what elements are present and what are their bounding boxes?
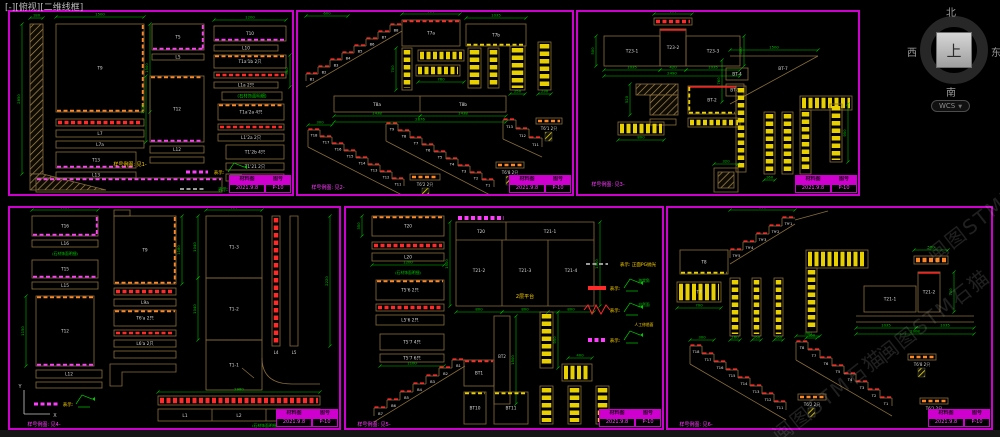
svg-text:自然面: 自然面 (638, 302, 650, 307)
svg-text:T9: T9 (96, 66, 103, 72)
drawing-panel-1: 18028501500T91500L7L7aT13L13T5L51150T12L… (10, 12, 292, 194)
title-block-cell: 材料图 (599, 409, 635, 418)
svg-text:760: 760 (437, 77, 445, 82)
svg-text:T7: T7 (695, 290, 702, 296)
svg-text:表示:: 表示: (610, 307, 621, 314)
svg-text:L15: L15 (61, 283, 69, 289)
title-block-cell: 图号 (831, 175, 857, 184)
svg-text:样号例图: 见5-: 样号例图: 见5- (357, 421, 390, 428)
svg-text:L5'6 2只: L5'6 2只 (401, 318, 419, 324)
svg-text:300: 300 (316, 120, 324, 125)
svg-text:T17: T17 (322, 140, 330, 144)
viewcube-south-label[interactable]: 南 (946, 84, 956, 99)
svg-text:B4: B4 (417, 388, 422, 392)
svg-text:350: 350 (356, 222, 361, 230)
svg-text:T7: T7 (413, 141, 418, 145)
svg-text:760: 760 (716, 77, 721, 85)
title-block-cell: P-10 (265, 184, 291, 193)
svg-text:样号例图: 见3-: 样号例图: 见3- (591, 181, 624, 188)
svg-text:T11: T11 (776, 406, 784, 410)
viewport-panel-2[interactable]: 600B1B2B3B4B5B6B7B8950T7a7007601035T7b25… (296, 10, 574, 196)
svg-text:L6'a 2只: L6'a 2只 (136, 341, 154, 347)
svg-text:T17: T17 (704, 358, 712, 362)
svg-text:520: 520 (624, 95, 629, 103)
svg-text:B7: B7 (378, 412, 383, 416)
svg-text:T1-1: T1-1 (228, 363, 239, 369)
svg-text:T9'1: T9'1 (784, 222, 793, 226)
svg-text:表示:: 表示: (214, 169, 225, 176)
viewport-controls-label[interactable]: [-][俯视][二维线框] (5, 0, 83, 13)
svg-text:T4: T4 (449, 162, 455, 166)
svg-text:B3: B3 (430, 380, 435, 384)
svg-text:T2: T2 (473, 176, 478, 180)
title-block: 材料图图号2021.9.8P-10 (276, 409, 338, 427)
title-block: 材料图图号2021.9.8P-10 (599, 409, 661, 427)
svg-text:T13: T13 (370, 168, 378, 172)
title-block-cell: P-10 (312, 418, 338, 427)
svg-text:样号例图: 见1-: 样号例图: 见1- (113, 161, 146, 168)
svg-text:500: 500 (738, 47, 743, 55)
svg-text:T20: T20 (476, 229, 485, 235)
svg-text:T9'5: T9'5 (732, 254, 741, 258)
svg-text:样号例图: 见2-: 样号例图: 见2- (311, 184, 344, 191)
svg-text:T12: T12 (172, 107, 181, 113)
svg-text:BT-7: BT-7 (778, 66, 788, 72)
svg-text:T1-2: T1-2 (228, 307, 239, 313)
svg-text:180: 180 (33, 13, 41, 18)
svg-text:1500: 1500 (510, 355, 515, 365)
svg-text:950: 950 (230, 208, 238, 210)
svg-text:L7a: L7a (96, 142, 104, 148)
svg-text:L16: L16 (61, 241, 69, 247)
svg-text:T12: T12 (764, 398, 772, 402)
svg-text:160: 160 (731, 335, 739, 340)
viewcube[interactable]: 上 北 南 西 东 WCS▼ (905, 4, 1000, 108)
svg-text:900: 900 (759, 208, 767, 210)
svg-text:160: 160 (753, 335, 761, 340)
svg-text:T9'2: T9'2 (771, 230, 780, 234)
svg-text:T8: T8 (799, 346, 805, 350)
title-block-cell: 2021.9.8 (509, 184, 545, 193)
drawing-panel-6: 900T9'5T9'4T9'3T9'2T9'1T8T77001601601601… (668, 208, 991, 428)
title-block-cell: P-10 (831, 184, 857, 193)
svg-text:表示:: 表示: (610, 337, 621, 344)
cad-canvas: [-][俯视][二维线框] 18028501500T91500L7L7aT13L… (0, 0, 1000, 437)
title-block-cell: 图号 (265, 175, 291, 184)
svg-text:(石材饰面明细): (石材饰面明细) (237, 93, 266, 100)
viewcube-west-label[interactable]: 西 (907, 44, 917, 59)
svg-text:T9: T9 (141, 248, 148, 254)
svg-text:(石材饰面明细): (石材饰面明细) (395, 270, 421, 275)
svg-text:1500: 1500 (144, 63, 149, 73)
svg-text:1035: 1035 (491, 13, 501, 18)
svg-text:T5: T5 (835, 370, 840, 374)
svg-text:1200: 1200 (245, 15, 255, 20)
svg-text:2876: 2876 (415, 117, 425, 122)
title-block-cell: 材料图 (509, 175, 545, 184)
svg-text:B1: B1 (456, 364, 461, 368)
svg-text:250: 250 (514, 89, 522, 94)
svg-text:T21-2: T21-2 (922, 290, 936, 296)
svg-text:T13: T13 (91, 158, 100, 164)
svg-text:1500: 1500 (95, 12, 105, 17)
svg-text:样号例图: 见4-: 样号例图: 见4- (27, 421, 60, 428)
viewcube-top-face[interactable]: 上 (936, 32, 972, 68)
drawing-panel-5: 350T20L201200(石材饰面明细)T5'6 2只L5'6 2只T5'7 … (346, 208, 662, 428)
svg-text:1035: 1035 (940, 323, 950, 328)
svg-text:560: 560 (927, 245, 935, 250)
svg-text:T23-2: T23-2 (666, 45, 680, 51)
svg-text:T6'2 2只: T6'2 2只 (803, 402, 820, 407)
viewport-panel-1[interactable]: 18028501500T91500L7L7aT13L13T5L51150T12L… (8, 10, 294, 196)
svg-text:T12: T12 (518, 134, 526, 138)
viewport-panel-4[interactable]: 1050T16L16(石材饰面明细)T15L151150T12L12T91180… (8, 206, 341, 430)
svg-text:160: 160 (766, 175, 774, 180)
svg-text:160: 160 (775, 335, 783, 340)
svg-text:1200: 1200 (403, 260, 413, 265)
svg-text:1150: 1150 (140, 104, 145, 114)
title-block-cell: 材料图 (229, 175, 265, 184)
svg-text:600: 600 (669, 12, 677, 14)
svg-text:表示:: 表示: (610, 285, 621, 292)
svg-text:800: 800 (637, 135, 645, 140)
svg-text:T5: T5 (437, 155, 442, 159)
svg-text:T3: T3 (859, 386, 864, 390)
svg-text:T16: T16 (716, 366, 724, 370)
svg-text:T18: T18 (692, 350, 700, 354)
svg-text:1150: 1150 (20, 326, 25, 336)
wcs-dropdown[interactable]: WCS▼ (931, 100, 970, 112)
svg-text:T16: T16 (60, 224, 69, 230)
svg-text:400: 400 (576, 353, 584, 358)
svg-text:T1'2b 4只: T1'2b 4只 (244, 150, 266, 156)
svg-text:T8: T8 (401, 134, 407, 138)
svg-text:L10: L10 (242, 46, 250, 52)
svg-text:2850: 2850 (16, 94, 21, 104)
svg-text:950: 950 (842, 129, 847, 137)
svg-text:T1'21 2只: T1'21 2只 (244, 164, 266, 170)
svg-text:2980: 2980 (234, 387, 244, 392)
svg-text:T15: T15 (728, 374, 736, 378)
svg-text:T1: T1 (883, 402, 888, 406)
svg-text:T16: T16 (334, 147, 342, 151)
title-block-cell: 图号 (635, 409, 661, 418)
svg-text:1035: 1035 (881, 323, 891, 328)
svg-text:L12: L12 (173, 147, 181, 153)
svg-text:1040: 1040 (192, 242, 197, 252)
svg-text:样号例图: 见6-: 样号例图: 见6- (679, 421, 712, 428)
svg-text:1500: 1500 (769, 45, 779, 50)
svg-text:L1: L1 (182, 413, 187, 419)
title-block: 材料图图号2021.9.8P-10 (795, 175, 857, 193)
svg-text:2层平台: 2层平台 (516, 293, 534, 300)
svg-text:B7: B7 (382, 35, 387, 39)
svg-text:T15: T15 (60, 267, 69, 273)
svg-text:T6'1 2只: T6'1 2只 (540, 126, 557, 131)
title-block-cell: 2021.9.8 (276, 418, 312, 427)
svg-text:950: 950 (552, 336, 557, 344)
svg-text:T12: T12 (60, 329, 69, 335)
svg-text:300: 300 (698, 335, 706, 340)
svg-text:800: 800 (567, 307, 575, 312)
svg-text:T6'a 2只: T6'a 2只 (135, 316, 154, 322)
title-block-cell: P-10 (964, 418, 990, 427)
viewport-panel-6[interactable]: 900T9'5T9'4T9'3T9'2T9'1T8T77001601601601… (666, 206, 993, 430)
svg-text:T10: T10 (245, 31, 254, 37)
bottom-edge-strip (0, 430, 1000, 437)
svg-text:T8a: T8a (372, 102, 381, 108)
svg-text:T7b: T7b (491, 33, 500, 39)
title-block: 材料图图号2021.9.8P-10 (229, 175, 291, 193)
svg-text:B2: B2 (322, 70, 327, 74)
svg-text:L9a: L9a (141, 300, 149, 306)
svg-text:600: 600 (323, 12, 331, 16)
svg-text:L1'2a 2只: L1'2a 2只 (241, 135, 262, 141)
svg-text:320: 320 (722, 159, 730, 164)
svg-text:B8: B8 (394, 28, 399, 32)
svg-text:海棠角: 海棠角 (638, 278, 650, 283)
svg-text:BT1: BT1 (475, 371, 484, 377)
title-block-cell: 材料图 (928, 409, 964, 418)
title-block-cell: 2021.9.8 (599, 418, 635, 427)
svg-text:(石材饰面明细): (石材饰面明细) (252, 423, 278, 428)
svg-text:560: 560 (284, 67, 289, 75)
title-block-cell: 图号 (545, 175, 571, 184)
svg-text:T6: T6 (425, 148, 431, 152)
svg-text:T9: T9 (389, 127, 395, 131)
svg-text:2008: 2008 (910, 329, 920, 334)
svg-text:230: 230 (541, 89, 549, 94)
svg-text:T3: T3 (461, 169, 466, 173)
svg-text:T6: T6 (823, 362, 829, 366)
svg-text:T8b: T8b (458, 102, 467, 108)
svg-text:B6: B6 (391, 404, 396, 408)
svg-text:BT11: BT11 (505, 406, 516, 412)
svg-text:T13: T13 (505, 125, 513, 129)
svg-text:BT-4: BT-4 (732, 72, 742, 78)
svg-text:B5: B5 (404, 396, 409, 400)
svg-text:T1a'2a 4只: T1a'2a 4只 (239, 110, 264, 116)
svg-text:2490: 2490 (667, 71, 677, 76)
svg-text:L12: L12 (65, 372, 73, 378)
svg-text:300: 300 (804, 331, 812, 336)
svg-text:T14: T14 (358, 161, 366, 165)
svg-text:B3: B3 (334, 63, 339, 67)
svg-text:T21-3: T21-3 (518, 268, 532, 274)
svg-text:L7: L7 (97, 131, 102, 137)
svg-text:T18: T18 (310, 133, 318, 137)
svg-text:Y: Y (17, 384, 22, 390)
svg-text:(石材饰面明细): (石材饰面明细) (52, 251, 78, 256)
svg-text:1100: 1100 (407, 361, 417, 366)
svg-text:1040: 1040 (192, 304, 197, 314)
svg-text:700: 700 (390, 65, 395, 73)
svg-text:表示:: 表示: (63, 401, 74, 408)
svg-text:BT2: BT2 (498, 354, 506, 359)
svg-text:T14: T14 (740, 382, 748, 386)
viewport-panel-5[interactable]: 350T20L201200(石材饰面明细)T5'6 2只L5'6 2只T5'7 … (344, 206, 664, 430)
svg-text:L1a 2只: L1a 2只 (238, 83, 255, 89)
title-block-cell: 材料图 (276, 409, 312, 418)
title-block-cell: 2021.9.8 (928, 418, 964, 427)
svg-text:T5'6 2只: T5'6 2只 (400, 288, 419, 294)
svg-text:T20: T20 (403, 224, 412, 230)
svg-text:1438: 1438 (372, 111, 382, 116)
svg-text:T23-3: T23-3 (706, 49, 720, 55)
svg-text:T5'7 4只: T5'7 4只 (402, 340, 421, 346)
svg-text:人工修凿面: 人工修凿面 (635, 322, 654, 327)
svg-text:2220: 2220 (324, 276, 329, 286)
svg-text:B2: B2 (443, 372, 448, 376)
svg-text:T6'2 2只: T6'2 2只 (416, 182, 433, 187)
svg-text:X: X (53, 413, 57, 419)
svg-text:800: 800 (475, 307, 483, 312)
svg-text:表示: 正面PG抛光: 表示: 正面PG抛光 (620, 261, 657, 268)
svg-text:T15: T15 (346, 154, 354, 158)
svg-text:T12: T12 (382, 175, 390, 179)
svg-text:420: 420 (669, 65, 677, 70)
svg-text:1035: 1035 (708, 65, 718, 70)
drawing-panel-4: 1050T16L16(石材饰面明细)T15L151150T12L12T91180… (10, 208, 339, 428)
svg-text:500: 500 (590, 47, 595, 55)
viewport-panel-3[interactable]: 600T23-1T23-2T23-35005001035420103524901… (576, 10, 860, 196)
viewcube-east-label[interactable]: 东 (991, 44, 1000, 59)
svg-text:T1-3: T1-3 (228, 245, 239, 251)
drawing-panel-2: 600B1B2B3B4B5B6B7B8950T7a7007601035T7b25… (298, 12, 572, 194)
svg-text:B1: B1 (310, 77, 315, 81)
drawing-panel-3: 600T23-1T23-2T23-35005001035420103524901… (578, 12, 858, 194)
svg-text:800: 800 (521, 307, 529, 312)
svg-text:B6: B6 (370, 42, 375, 46)
svg-text:T11: T11 (394, 182, 402, 186)
svg-text:B5: B5 (358, 49, 363, 53)
svg-text:L5: L5 (292, 350, 297, 355)
svg-text:L5: L5 (175, 55, 180, 61)
title-block-cell: 2021.9.8 (795, 184, 831, 193)
svg-text:950: 950 (427, 12, 435, 14)
chevron-down-icon: ▼ (958, 104, 962, 110)
svg-text:T9'3: T9'3 (758, 238, 767, 242)
svg-text:T7a: T7a (426, 31, 435, 37)
svg-text:L2: L2 (236, 413, 241, 419)
svg-text:1500: 1500 (444, 259, 449, 269)
title-block-cell: 2021.9.8 (229, 184, 265, 193)
svg-text:1180: 1180 (176, 245, 181, 255)
svg-text:T21-1: T21-1 (883, 297, 897, 303)
title-block: 材料图图号2021.9.8P-10 (928, 409, 990, 427)
svg-text:T11: T11 (531, 143, 539, 147)
svg-text:700: 700 (948, 288, 953, 296)
svg-text:1438: 1438 (458, 111, 468, 116)
svg-text:BT10: BT10 (469, 406, 480, 412)
svg-text:T2: T2 (871, 394, 876, 398)
title-block: 材料图图号2021.9.8P-10 (509, 175, 571, 193)
title-block-cell: 图号 (964, 409, 990, 418)
wcs-label: WCS (939, 102, 955, 110)
svg-text:T8: T8 (700, 260, 707, 266)
svg-text:T21-4: T21-4 (564, 268, 578, 274)
svg-text:T6'8 2只: T6'8 2只 (913, 362, 930, 367)
svg-text:T1: T1 (485, 183, 490, 187)
svg-text:T23-1: T23-1 (625, 49, 639, 55)
svg-text:1050: 1050 (60, 208, 70, 210)
svg-text:T7: T7 (811, 354, 816, 358)
svg-text:T21-1: T21-1 (543, 229, 557, 235)
svg-text:T13: T13 (752, 390, 760, 394)
svg-text:T21-2: T21-2 (472, 268, 486, 274)
title-block-cell: P-10 (635, 418, 661, 427)
svg-text:T4: T4 (847, 378, 853, 382)
svg-text:700: 700 (695, 303, 703, 308)
title-block-cell: 图号 (312, 409, 338, 418)
svg-text:T1a'1b 2只: T1a'1b 2只 (237, 59, 262, 65)
svg-text:1035: 1035 (627, 65, 637, 70)
svg-text:BT-2: BT-2 (707, 98, 717, 104)
viewcube-north-label[interactable]: 北 (946, 4, 956, 19)
title-block-cell: 材料图 (795, 175, 831, 184)
svg-text:B4: B4 (346, 56, 351, 60)
svg-text:T5: T5 (174, 35, 181, 41)
svg-text:L4: L4 (274, 350, 279, 355)
title-block-cell: P-10 (545, 184, 571, 193)
